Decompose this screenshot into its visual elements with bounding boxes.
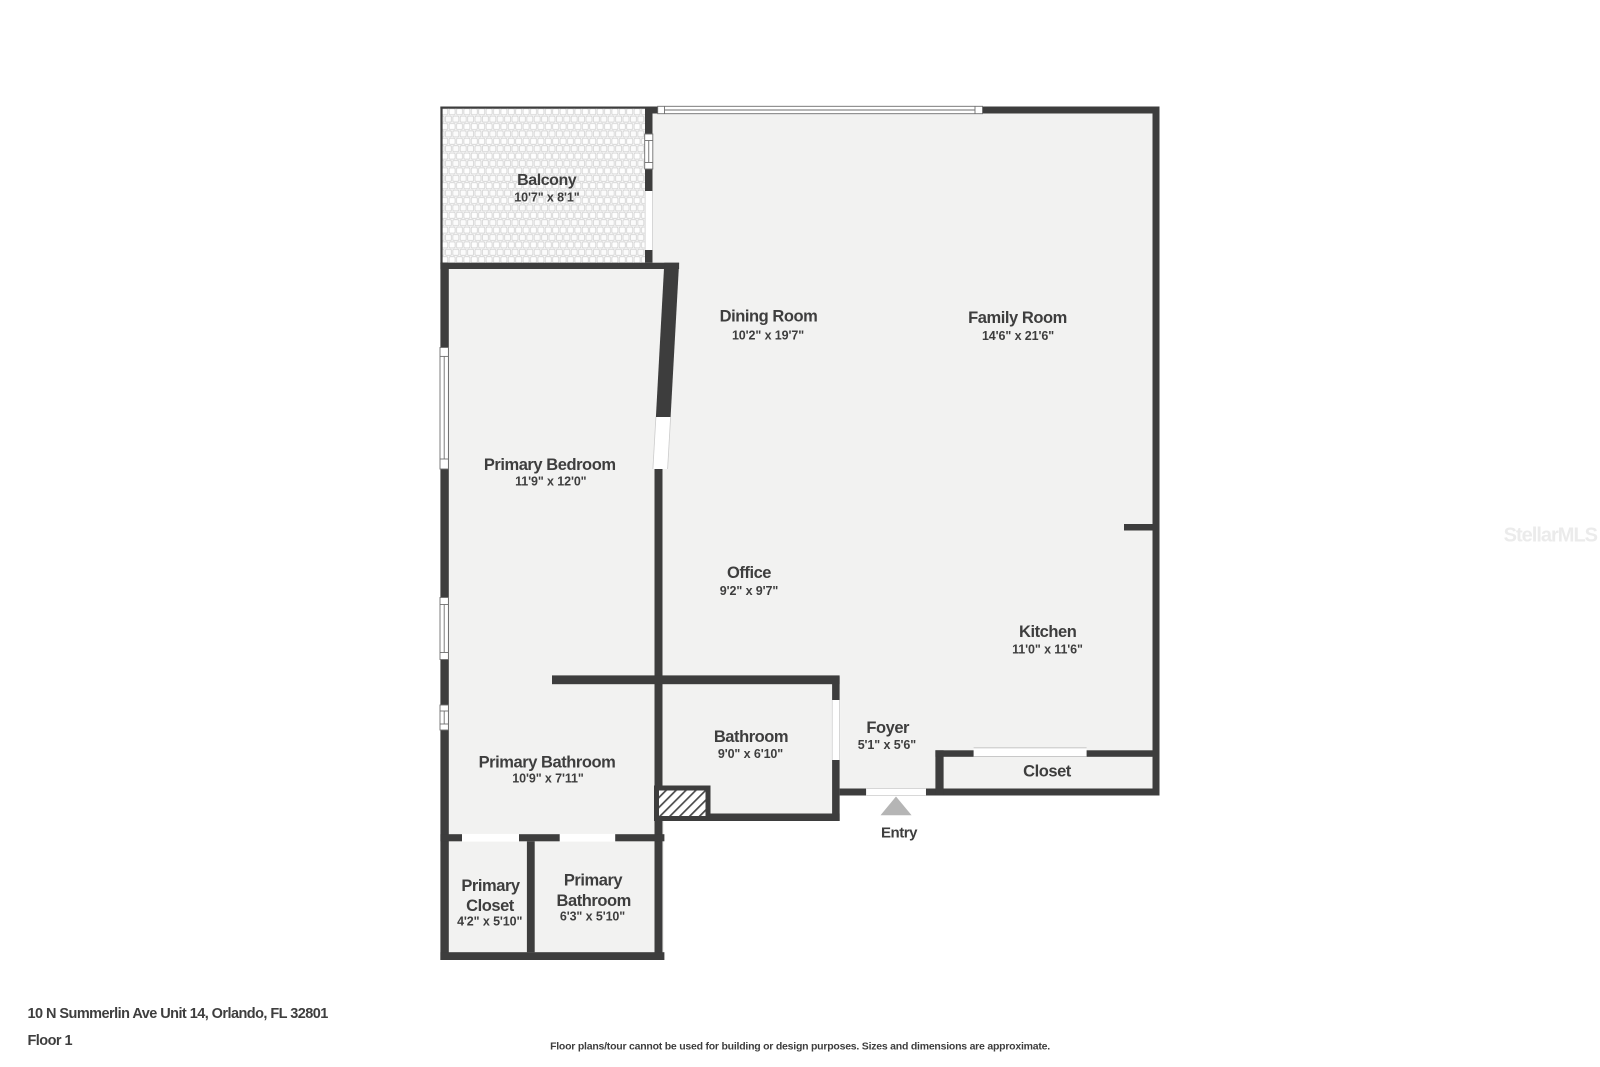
svg-text:Balcony: Balcony: [517, 172, 577, 189]
svg-text:Kitchen: Kitchen: [1019, 623, 1077, 641]
svg-text:Primary: Primary: [564, 872, 624, 890]
svg-text:Floor plans/tour cannot be use: Floor plans/tour cannot be used for buil…: [550, 1041, 1050, 1053]
svg-text:Bathroom: Bathroom: [557, 892, 631, 910]
svg-text:Office: Office: [727, 564, 771, 582]
svg-text:Dining Room: Dining Room: [720, 308, 818, 326]
svg-text:11'0" x 11'6": 11'0" x 11'6": [1012, 643, 1083, 657]
svg-text:Foyer: Foyer: [866, 719, 910, 737]
svg-text:11'9" x 12'0": 11'9" x 12'0": [515, 475, 587, 489]
svg-text:Primary Bathroom: Primary Bathroom: [479, 754, 616, 772]
svg-text:9'2" x 9'7": 9'2" x 9'7": [720, 584, 779, 598]
svg-text:Closet: Closet: [1023, 763, 1072, 781]
svg-text:Bathroom: Bathroom: [714, 728, 788, 746]
svg-text:5'1" x 5'6": 5'1" x 5'6": [858, 738, 917, 752]
svg-text:StellarMLS: StellarMLS: [1504, 525, 1598, 547]
svg-text:Primary: Primary: [461, 877, 521, 895]
svg-text:10'7" x 8'1": 10'7" x 8'1": [514, 191, 579, 205]
svg-text:Floor 1: Floor 1: [28, 1033, 73, 1049]
svg-text:10'9" x 7'11": 10'9" x 7'11": [512, 772, 584, 786]
svg-text:Primary Bedroom: Primary Bedroom: [484, 456, 616, 474]
svg-text:4'2" x 5'10": 4'2" x 5'10": [457, 915, 522, 929]
svg-text:Entry: Entry: [881, 825, 918, 842]
svg-text:9'0" x 6'10": 9'0" x 6'10": [718, 747, 783, 761]
svg-text:Closet: Closet: [466, 897, 515, 915]
svg-text:Family Room: Family Room: [968, 309, 1067, 327]
svg-text:10 N Summerlin Ave Unit 14, Or: 10 N Summerlin Ave Unit 14, Orlando, FL …: [28, 1006, 329, 1022]
svg-text:6'3" x 5'10": 6'3" x 5'10": [560, 910, 625, 924]
svg-text:14'6" x 21'6": 14'6" x 21'6": [982, 329, 1054, 343]
svg-text:10'2" x 19'7": 10'2" x 19'7": [732, 329, 804, 343]
